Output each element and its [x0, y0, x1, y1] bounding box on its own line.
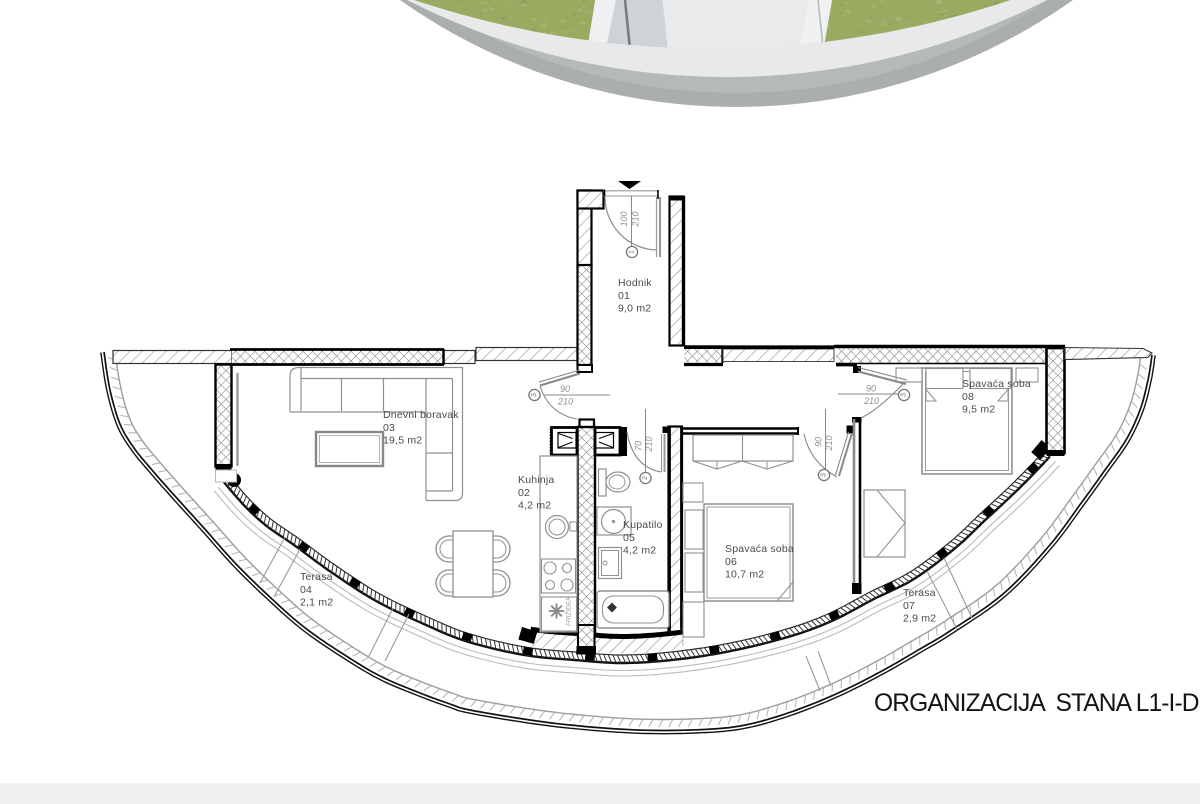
- svg-text:90: 90: [814, 437, 824, 447]
- svg-text:90: 90: [866, 384, 876, 394]
- svg-text:90: 90: [560, 384, 570, 394]
- svg-text:210: 210: [863, 396, 879, 406]
- svg-text:210: 210: [631, 211, 641, 227]
- svg-text:3: 3: [821, 473, 828, 477]
- svg-text:3: 3: [901, 393, 908, 397]
- svg-text:3: 3: [531, 393, 538, 397]
- svg-text:ORGANIZACIJA STANA L1-I-D: ORGANIZACIJA STANA L1-I-D: [874, 690, 1199, 717]
- svg-text:210: 210: [644, 436, 654, 452]
- svg-text:210: 210: [557, 397, 573, 407]
- svg-text:210: 210: [824, 435, 834, 451]
- svg-text:70: 70: [634, 441, 644, 451]
- svg-text:100: 100: [619, 211, 629, 226]
- svg-text:FRIŽIDER: FRIŽIDER: [564, 596, 573, 626]
- svg-text:1: 1: [629, 250, 636, 254]
- svg-text:2: 2: [642, 476, 649, 480]
